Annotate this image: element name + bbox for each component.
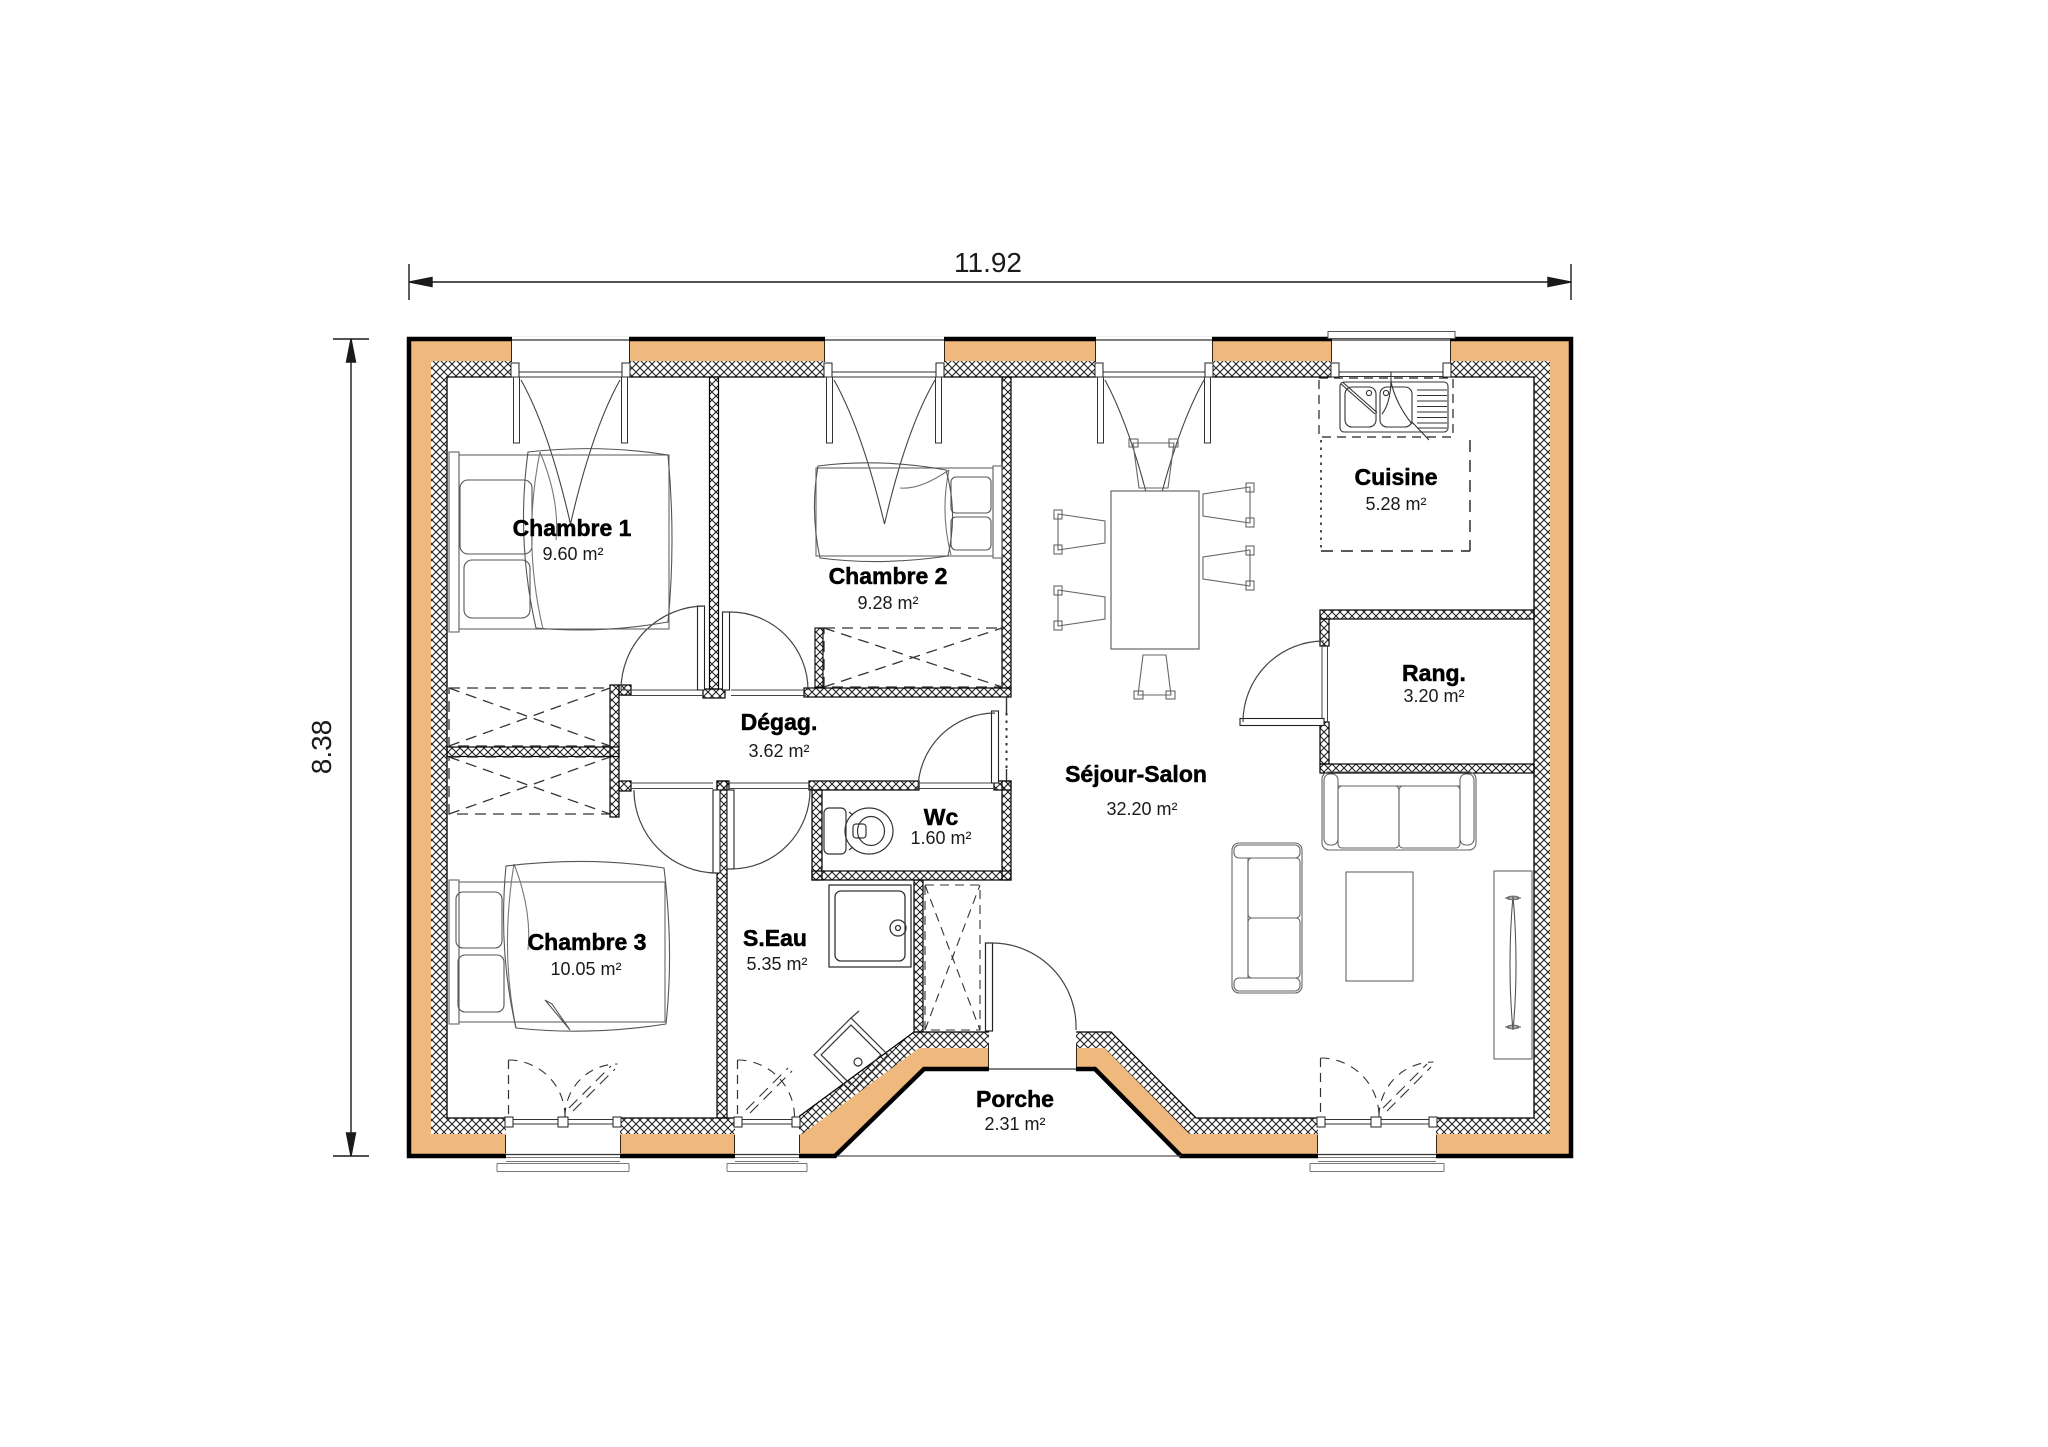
svg-text:Wc: Wc bbox=[924, 804, 959, 830]
svg-text:9.28 m²: 9.28 m² bbox=[857, 593, 918, 613]
svg-text:3.62 m²: 3.62 m² bbox=[748, 741, 809, 761]
svg-text:2.31 m²: 2.31 m² bbox=[984, 1114, 1045, 1134]
svg-text:Rang.: Rang. bbox=[1402, 660, 1466, 686]
svg-text:9.60 m²: 9.60 m² bbox=[542, 544, 603, 564]
svg-text:10.05 m²: 10.05 m² bbox=[550, 959, 621, 979]
svg-text:1.60 m²: 1.60 m² bbox=[910, 828, 971, 848]
svg-text:5.35 m²: 5.35 m² bbox=[746, 954, 807, 974]
svg-text:S.Eau: S.Eau bbox=[743, 925, 807, 951]
svg-text:Cuisine: Cuisine bbox=[1354, 464, 1437, 490]
svg-text:Chambre 3: Chambre 3 bbox=[528, 929, 647, 955]
svg-text:Porche: Porche bbox=[976, 1086, 1054, 1112]
svg-text:Dégag.: Dégag. bbox=[741, 709, 818, 735]
svg-text:8.38: 8.38 bbox=[306, 720, 337, 775]
svg-text:32.20 m²: 32.20 m² bbox=[1106, 799, 1177, 819]
svg-text:5.28 m²: 5.28 m² bbox=[1365, 494, 1426, 514]
svg-text:Séjour-Salon: Séjour-Salon bbox=[1065, 761, 1207, 787]
svg-text:Chambre 2: Chambre 2 bbox=[829, 563, 948, 589]
svg-text:3.20 m²: 3.20 m² bbox=[1403, 686, 1464, 706]
svg-text:Chambre 1: Chambre 1 bbox=[513, 515, 632, 541]
svg-text:11.92: 11.92 bbox=[954, 247, 1022, 278]
